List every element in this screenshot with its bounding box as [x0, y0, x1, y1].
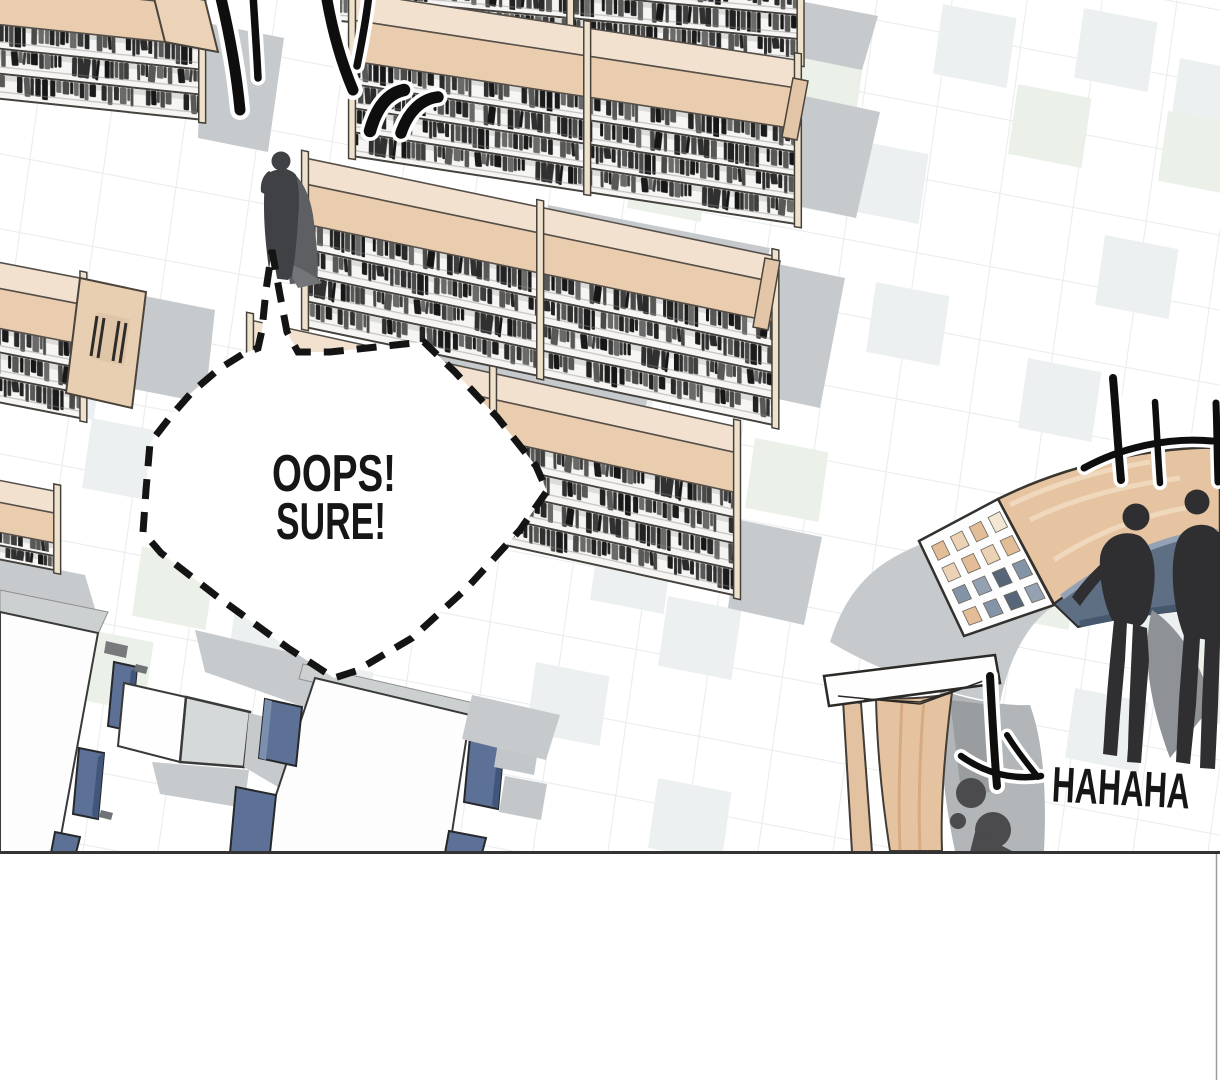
svg-text:HAHAHA: HAHAHA — [1051, 756, 1192, 819]
svg-text:SURE!: SURE! — [276, 493, 386, 551]
